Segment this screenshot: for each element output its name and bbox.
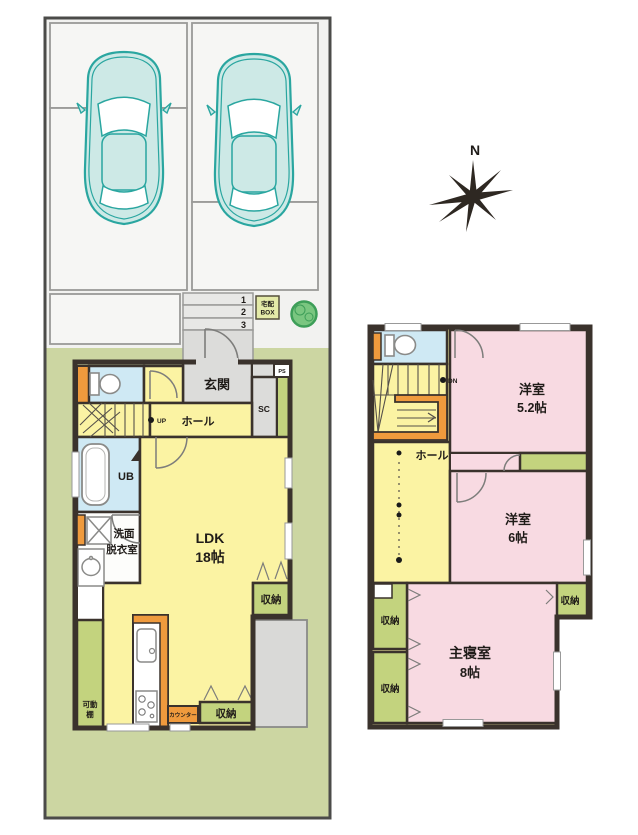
genkan-label: 玄関 [204, 377, 230, 392]
room-6-label-2: 6帖 [508, 530, 528, 545]
room-5-2-label-2: 5.2帖 [517, 400, 547, 415]
storage-left-void [374, 584, 392, 598]
compass-rose: N [429, 142, 513, 232]
toilet2f-shelf [373, 333, 381, 360]
delivery-box-label-2: BOX [260, 310, 275, 317]
storage-bottom-label: 収納 [216, 707, 237, 720]
hall2f [373, 442, 450, 583]
entrance-opening [196, 358, 238, 366]
room-5-2-closet [520, 453, 587, 471]
floorplan-drawing: 1 2 3 宅配 BOX [0, 0, 638, 835]
room-5-2-label-1: 洋室 [519, 382, 545, 397]
car-right [207, 54, 301, 226]
compass-star-icon [429, 160, 513, 232]
compass-north-label: N [470, 142, 480, 158]
kitchen-counter [133, 615, 168, 728]
room-6-room [450, 471, 587, 583]
shelf-label-2: 棚 [86, 709, 94, 719]
ldk-label-1: LDK [196, 530, 225, 546]
tree-icon [292, 302, 317, 327]
up-label: UP [157, 418, 167, 425]
dn-label: DN [448, 378, 458, 385]
toilet1f-icon [90, 373, 120, 395]
driveway [50, 294, 180, 344]
floor1-plan: 玄関 SC PS UP ホール UB 洗面 脱衣室 LDK 18帖 収納 収納 … [72, 358, 307, 731]
room-5-2-closet-entry [450, 453, 520, 471]
step-number-2: 2 [241, 307, 246, 317]
washroom-label-1: 洗面 [114, 527, 135, 540]
storage-left-top-label-2f: 収納 [380, 615, 399, 627]
storage-right-label-2f: 収納 [560, 595, 579, 607]
delivery-box: 宅配 BOX [256, 296, 279, 319]
master-label-1: 主寝室 [449, 645, 491, 661]
xbox-storage [77, 583, 103, 620]
stairs1f [77, 403, 150, 437]
ldk-label-2: 18帖 [195, 549, 225, 565]
toilet2f-icon [385, 335, 416, 356]
floor2-plan: DN ホール 洋室 5.2帖 洋室 6帖 主寝室 8帖 収納 収納 収納 [370, 324, 591, 728]
step-number-3: 3 [241, 320, 246, 330]
shelf-label-1: 可動 [83, 699, 98, 709]
washroom-label-2: 脱衣室 [106, 543, 138, 556]
washer-icon [77, 515, 111, 545]
ps-label: PS [278, 369, 286, 375]
hall1f-label: ホール [182, 415, 215, 428]
storage-left-bottom-label-2f: 収納 [380, 683, 399, 695]
delivery-box-label-1: 宅配 [261, 299, 275, 308]
hall2f-label: ホール [416, 449, 449, 462]
toilet1f-shelf [77, 366, 89, 403]
up-marker-dot [148, 417, 154, 423]
car-left [77, 52, 171, 224]
sc-label: SC [258, 404, 270, 414]
floorplan-page: 1 2 3 宅配 BOX [0, 0, 638, 835]
storage-mid-label: 収納 [261, 593, 282, 606]
step-number-1: 1 [241, 295, 246, 305]
kitchen-sink-icon [137, 629, 156, 662]
entrance-porch [183, 330, 253, 362]
room-6-label-1: 洋室 [505, 512, 531, 527]
dn-marker-dot [440, 377, 446, 383]
vanity-icon [78, 549, 104, 586]
counter-label: カウンター [169, 711, 197, 719]
master-label-2: 8帖 [460, 665, 480, 680]
ub-label: UB [118, 471, 134, 483]
terrace [253, 620, 307, 727]
